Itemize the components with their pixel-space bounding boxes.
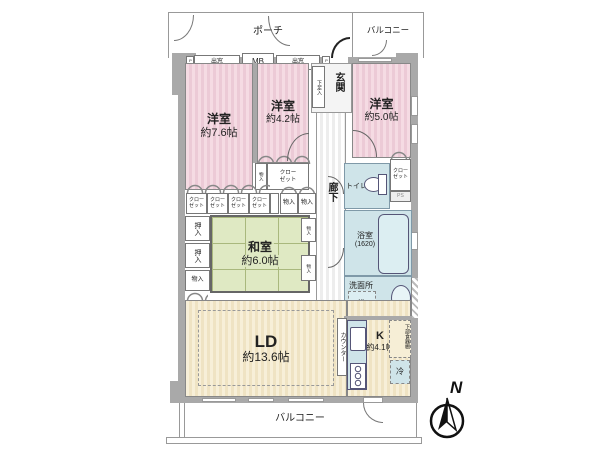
corridor	[316, 113, 346, 300]
lower-cupboard-label: 下部食器棚	[404, 324, 409, 349]
room-japanese-name: 和室	[246, 241, 274, 255]
duct-hatch	[411, 278, 418, 318]
oshiire-2: 押入	[185, 243, 210, 268]
window-right-1	[411, 96, 418, 116]
storage-left-column: 物入	[185, 270, 210, 291]
storage-japanese-2: 物入	[301, 255, 316, 281]
lower-cupboard: 下部食器棚	[389, 320, 411, 358]
closet-under-42-label: クロー ゼット	[280, 170, 297, 183]
closet-2-label: クロー ゼット	[210, 198, 225, 210]
storage-japanese-1: 物入	[301, 218, 316, 242]
kitchen-counter	[347, 320, 367, 390]
toilet-tank-icon	[378, 174, 387, 195]
window-right-3	[411, 232, 418, 250]
room-western-50-size: 約5.0帖	[365, 112, 399, 124]
room-western-76-name: 洋室	[207, 113, 231, 127]
closet-3-label: クロー ゼット	[231, 198, 246, 210]
room-western-42-size: 約4.2帖	[266, 114, 300, 126]
oshiire-2-label: 押入	[194, 249, 201, 263]
ps-near-closet: PS	[390, 191, 411, 202]
wall-left	[178, 53, 185, 403]
entrance-label: 玄関	[333, 72, 343, 92]
balcony-partition-left-a	[179, 403, 180, 437]
closet-3: クロー ゼット	[228, 193, 249, 214]
window-top-right-room	[358, 58, 392, 62]
floor-plan: ポーチ バルコニー 出窓 MB 出窓 PS PS 洋室 約7.6帖 洋室 約4.…	[0, 0, 600, 449]
room-kitchen-name: K	[376, 330, 384, 343]
small-cabinet	[270, 193, 279, 214]
bathroom-label: 浴室	[349, 231, 381, 240]
storage-strip-2-label: 物入	[301, 200, 313, 207]
ld-storage-doors	[186, 292, 208, 301]
oshiire-1-label: 押入	[194, 222, 201, 236]
closet-1: クロー ゼット	[186, 193, 207, 214]
closet-near-toilet: クロー ゼット	[390, 159, 411, 191]
room-western-76: 洋室 約7.6帖	[185, 63, 253, 190]
storage-left-column-label: 物入	[191, 277, 203, 284]
balcony-edge-right	[416, 403, 417, 437]
storage-strip-1: 物入	[280, 193, 298, 214]
room-western-50-name: 洋室	[369, 98, 393, 112]
bathroom: 浴室 (1620)	[344, 210, 412, 276]
compass-needle-left-icon	[438, 398, 447, 430]
ps-near-closet-label: PS	[397, 194, 404, 200]
closet-near-toilet-label: クロー ゼット	[393, 169, 408, 181]
room-japanese: 和室 約6.0帖	[210, 215, 310, 293]
closet-4: クロー ゼット	[249, 193, 270, 214]
balcony-slab	[166, 437, 422, 444]
compass: N	[420, 376, 480, 446]
room-western-42-name: 洋室	[271, 100, 295, 114]
balcony-bottom-label: バルコニー	[250, 413, 350, 425]
storage-japanese-1-label: 物入	[306, 226, 311, 235]
kitchen-stove-icon	[350, 363, 366, 389]
compass-needle-right-icon	[447, 398, 456, 430]
closet-4-label: クロー ゼット	[252, 198, 267, 210]
balcony-partition-left-b	[184, 403, 185, 437]
balcony-door-arc	[363, 403, 383, 423]
oshiire-1: 押入	[185, 216, 210, 241]
room-japanese-size: 約6.0帖	[239, 255, 280, 268]
balcony-top-label: バルコニー	[356, 26, 420, 36]
compass-north-label: N	[450, 378, 463, 397]
bathtub-icon	[378, 214, 409, 274]
counter-label-strip: カウンター	[337, 318, 347, 376]
window-right-2	[411, 124, 418, 144]
counter-label: カウンター	[339, 332, 345, 362]
refrigerator-label: 冷	[396, 367, 404, 376]
closet-1-label: クロー ゼット	[189, 198, 204, 210]
washroom-label: 洗面所	[349, 281, 373, 290]
window-bottom-1	[202, 398, 236, 402]
room-western-76-size: 約7.6帖	[200, 127, 237, 140]
bathroom-size-label: (1620)	[349, 241, 381, 249]
refrigerator: 冷	[390, 360, 410, 384]
storage-strip-2: 物入	[298, 193, 316, 214]
window-bottom-2	[248, 398, 274, 402]
closet-2: クロー ゼット	[207, 193, 228, 214]
closet-strip-doors	[186, 184, 270, 193]
shoe-cabinet-label: 下足入	[316, 80, 321, 95]
window-bottom-3	[288, 398, 324, 402]
kitchen-sink-icon	[350, 327, 366, 351]
storage-strip-1-label: 物入	[283, 200, 295, 207]
storage-under-42-label: 物入	[259, 172, 264, 181]
ld-dashed-area	[198, 310, 334, 386]
storage-japanese-2-label: 物入	[306, 264, 311, 273]
shoe-cabinet: 下足入	[312, 66, 325, 108]
toilet-room: トイレ	[344, 163, 390, 209]
